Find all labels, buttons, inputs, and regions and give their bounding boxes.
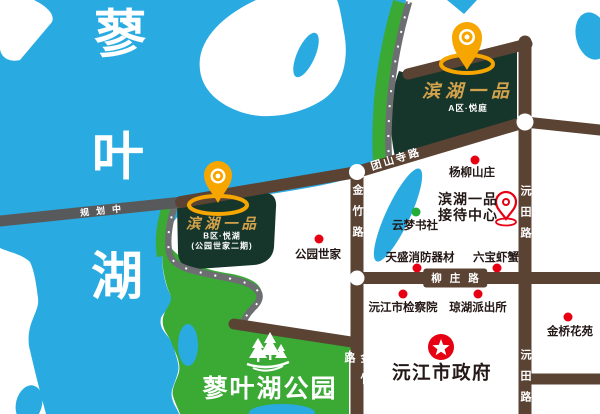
poi-label-tiansheng[interactable]: 天盛消防器材 — [386, 249, 455, 265]
road-label-jinzhu-south: 金竹路 — [341, 352, 373, 414]
lake-name-char: 湖 — [91, 235, 143, 310]
poi-label-liubao[interactable]: 六宝虾蟹 — [473, 249, 519, 265]
estate-a-title: 滨湖一品 — [422, 77, 514, 103]
estate-b-note: (公园世家二期) — [191, 240, 252, 251]
location-map: 蓼 叶 湖 蓼叶湖公园 滨湖一品 A区·悦庭 滨湖一品 B区·悦湖 (公园世家二… — [0, 0, 600, 414]
poi-label-yangliu[interactable]: 杨柳山庄 — [449, 164, 495, 180]
poi-label-paichusuo[interactable]: 琼湖派出所 — [449, 299, 507, 315]
government-star-icon[interactable] — [428, 334, 454, 360]
water-blob-topright — [571, 9, 600, 63]
road-label-liuzhuang: 柳庄路 — [423, 269, 487, 288]
poi-dot-yunmeng[interactable] — [412, 208, 421, 217]
intersection-node — [350, 271, 365, 286]
lake-name-char: 叶 — [92, 115, 144, 190]
poi-dot-gongyuanshijia[interactable] — [315, 235, 324, 244]
poi-dot-jinqiao[interactable] — [564, 313, 573, 322]
poi-label-yunmeng[interactable]: 云梦书社 — [392, 217, 438, 233]
government-label: 沅江市政府 — [392, 359, 492, 385]
road-label-jinzhu-north: 金竹路 — [349, 184, 365, 247]
water-wedge — [447, 0, 477, 14]
poi-label-gongyuanshijia[interactable]: 公园世家 — [295, 246, 341, 262]
reception-center-label: 滨湖一品 接待中心 — [438, 191, 498, 223]
lake-name-char: 蓼 — [94, 0, 146, 68]
intersection-node — [349, 164, 365, 180]
intersection-node — [517, 114, 534, 131]
park-name: 蓼叶湖公园 — [202, 369, 337, 405]
road-label-yuantian-south: 沅田路 — [517, 349, 533, 412]
road-label-yuantian-north: 沅田路 — [517, 185, 533, 248]
reception-pin-icon[interactable] — [496, 192, 516, 226]
poi-dot-jianchayuan[interactable] — [399, 290, 408, 299]
estate-a-subtitle: A区·悦庭 — [448, 102, 487, 114]
poi-label-jinqiao[interactable]: 金桥花苑 — [547, 323, 593, 339]
poi-dot-paichusuo[interactable] — [474, 290, 483, 299]
park-pond-west — [178, 324, 198, 366]
poi-label-jianchayuan[interactable]: 沅江市检察院 — [369, 299, 438, 315]
road-east-branch — [525, 122, 600, 130]
